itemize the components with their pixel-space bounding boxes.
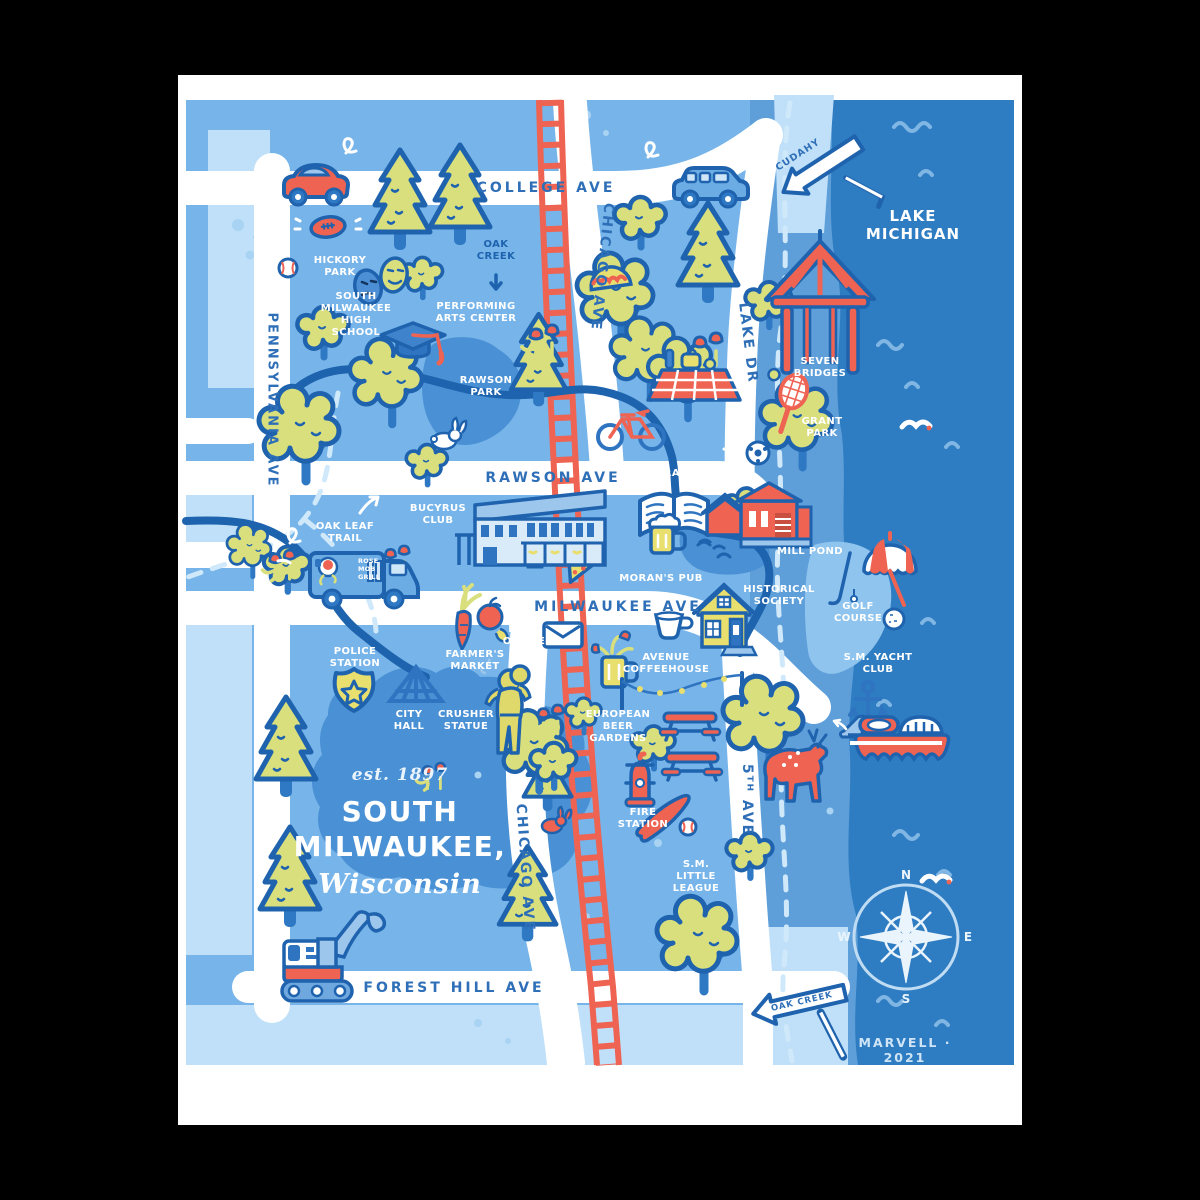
compass-e: E	[964, 930, 972, 944]
label-little-league: S.M. LITTLE LEAGUE	[673, 859, 720, 895]
label-mill-pond: MILL POND	[777, 546, 843, 558]
label-police-station: POLICE STATION	[330, 646, 380, 670]
street-pennsylvania-ave: PENNSYLVANIA AVE	[265, 312, 280, 487]
title-state: Wisconsin	[318, 869, 481, 901]
street-rawson-ave: RAWSON AVE	[485, 470, 620, 486]
label-seven-bridges: SEVEN BRIDGES	[794, 356, 846, 380]
label-historical-society: HISTORICAL SOCIETY	[743, 584, 815, 608]
label-golf-course: GOLF COURSE	[834, 601, 882, 625]
label-bucyrus-club: BUCYRUS CLUB	[410, 503, 466, 527]
food-truck-name: ROSE MOB GRILL	[358, 557, 380, 581]
street-forest-hill-ave: FOREST HILL AVE	[363, 980, 544, 996]
label-post-office: POST OFFICE	[503, 624, 545, 648]
label-farmers-market: FARMER'S MARKET	[445, 649, 504, 673]
compass-w: W	[837, 930, 850, 944]
label-oak-creek: OAK CREEK	[477, 239, 515, 263]
label-city-hall: CITY HALL	[394, 709, 424, 733]
title-city-line1: SOUTH	[342, 795, 459, 829]
screenshot-canvas: HICKORY PARK OAK CREEK SOUTH MILWAUKEE H…	[0, 0, 1200, 1200]
baseball-icon-2	[680, 819, 696, 835]
compass-s: S	[902, 992, 911, 1006]
label-hickory-park: HICKORY PARK	[314, 255, 366, 279]
label-beer-gardens: EUROPEAN BEER GARDENS	[586, 709, 651, 745]
map-poster: HICKORY PARK OAK CREEK SOUTH MILWAUKEE H…	[178, 75, 1022, 1125]
label-fire-station: FIRE STATION	[618, 807, 668, 831]
title-est: est. 1897	[352, 765, 448, 785]
baseball-icon	[279, 259, 297, 277]
street-5th-ave: 5ᵀᴴ AVE	[739, 764, 755, 836]
post-office-envelope-icon	[544, 623, 582, 647]
label-rawson-park: RAWSON PARK	[460, 375, 513, 399]
map-credit: MARVELL · 2021	[847, 1035, 964, 1065]
label-library: LIBRARY	[645, 468, 695, 480]
label-lake-michigan: LAKE MICHIGAN	[866, 207, 960, 243]
street-milwaukee-ave: MILWAUKEE AVE	[534, 599, 702, 615]
label-avenue-coffeehouse: AVENUE COFFEEHOUSE	[623, 652, 710, 676]
label-yacht-club: S.M. YACHT CLUB	[844, 652, 913, 676]
street-college-ave: COLLEGE AVE	[477, 180, 616, 196]
golf-ball-icon	[884, 609, 904, 629]
label-oak-leaf-trail: OAK LEAF TRAIL	[316, 521, 374, 545]
label-morans-pub: MORAN'S PUB	[619, 573, 702, 585]
compass-n: N	[901, 868, 911, 882]
label-high-school: SOUTH MILWAUKEE HIGH SCHOOL	[321, 291, 391, 339]
title-city-line2: MILWAUKEE,	[294, 830, 507, 864]
compass-rose-icon	[854, 885, 958, 989]
label-grant-park: GRANT PARK	[802, 416, 843, 440]
label-arts-center: PERFORMING ARTS CENTER	[436, 301, 517, 325]
label-crusher-statue: CRUSHER STATUE	[438, 709, 494, 733]
